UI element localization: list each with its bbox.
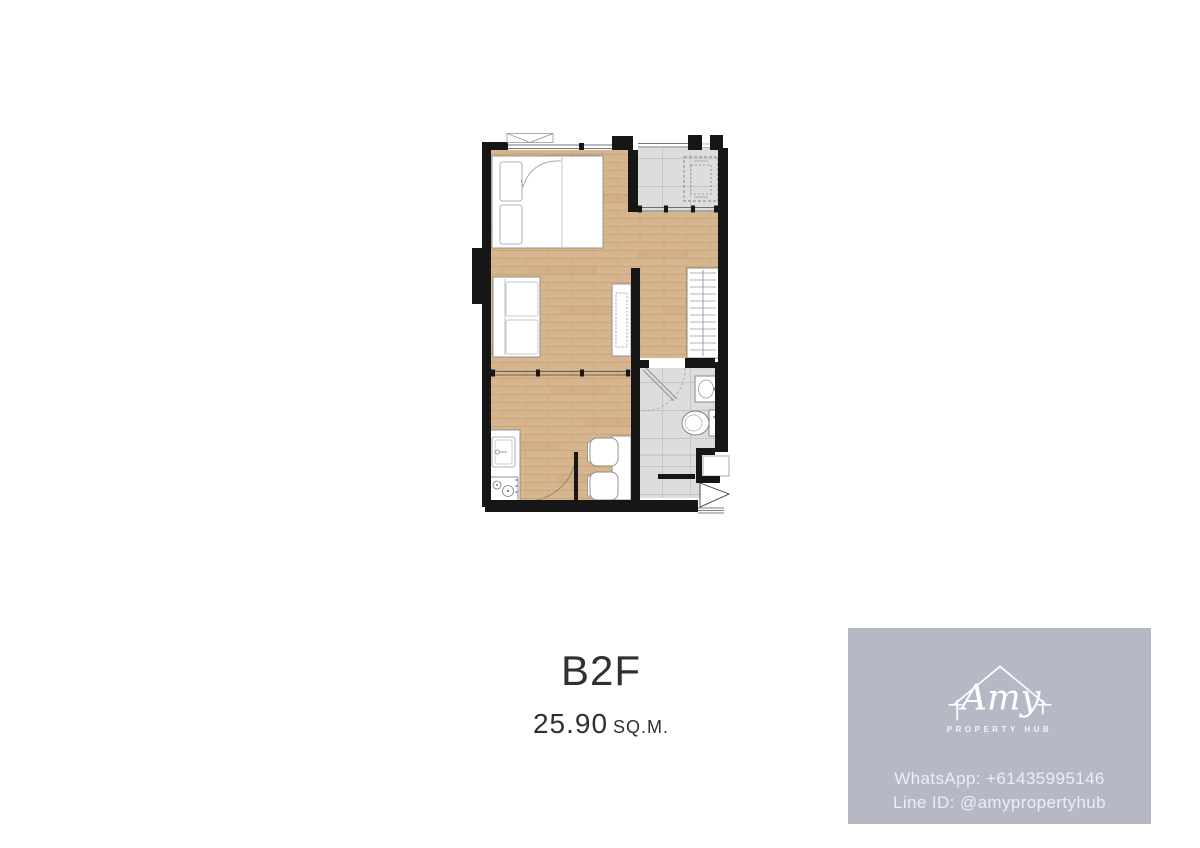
balcony-floor bbox=[638, 148, 718, 212]
floorplan-flyer: B2F 25.90SQ.M. Amy PROPERTY HUB WhatsApp… bbox=[0, 0, 1200, 848]
house-outline-icon: Amy bbox=[941, 662, 1059, 722]
tv-console bbox=[612, 284, 631, 356]
entrance-door bbox=[700, 483, 729, 507]
whatsapp-label: WhatsApp: bbox=[894, 769, 981, 788]
wall-balcony-top-a bbox=[688, 135, 702, 150]
shower-kerb bbox=[658, 474, 695, 479]
toilet-bowl bbox=[682, 411, 709, 435]
stove bbox=[489, 477, 518, 501]
area-value: 25.90 bbox=[533, 708, 608, 739]
whatsapp-value: +61435995146 bbox=[986, 769, 1105, 788]
window-awning bbox=[507, 134, 553, 143]
unit-name: B2F bbox=[436, 648, 766, 694]
wall-bathroom-top bbox=[685, 358, 715, 368]
wall-balcony-top-b bbox=[710, 135, 723, 150]
floor-plan bbox=[466, 130, 736, 514]
wall-left bbox=[482, 142, 491, 507]
wood-floor-doorway bbox=[631, 212, 638, 268]
wall-top-mid bbox=[612, 136, 633, 150]
wall-right-bathroom bbox=[715, 362, 728, 452]
pillow bbox=[500, 162, 522, 201]
pillow bbox=[500, 205, 522, 244]
logo-name: Amy bbox=[958, 678, 1041, 719]
dining-chair bbox=[588, 472, 619, 500]
line-id-value: @amypropertyhub bbox=[960, 793, 1106, 812]
dining-chair bbox=[588, 438, 619, 466]
wall-left-column bbox=[472, 248, 491, 304]
whatsapp-line: WhatsApp: +61435995146 bbox=[893, 767, 1106, 791]
wall-kitchen-partition bbox=[574, 452, 578, 505]
wall-bathroom-jamb bbox=[640, 360, 649, 368]
entry-threshold-hatch bbox=[698, 508, 724, 513]
entry-niche bbox=[703, 456, 729, 476]
wall-bottom bbox=[485, 500, 698, 512]
agency-watermark: Amy PROPERTY HUB WhatsApp: +61435995146 … bbox=[848, 628, 1151, 824]
wall-entry-sill bbox=[696, 476, 720, 483]
area-unit: SQ.M. bbox=[613, 717, 669, 737]
wall-right-upper bbox=[718, 148, 728, 362]
wardrobe bbox=[687, 268, 719, 358]
sofa bbox=[493, 277, 540, 357]
bedroom-window bbox=[508, 143, 612, 150]
wall-entry-side bbox=[696, 448, 702, 480]
kitchen-counter bbox=[487, 430, 520, 502]
wall-bedroom-balcony bbox=[628, 150, 638, 212]
line-id-line: Line ID: @amypropertyhub bbox=[893, 791, 1106, 815]
logo-subtitle: PROPERTY HUB bbox=[947, 725, 1052, 734]
kitchen-sink bbox=[492, 437, 515, 467]
contact-info: WhatsApp: +61435995146 Line ID: @amyprop… bbox=[893, 767, 1106, 815]
unit-area: 25.90SQ.M. bbox=[436, 708, 766, 740]
bed bbox=[492, 156, 603, 248]
wall-interior-long bbox=[631, 268, 640, 508]
line-id-label: Line ID: bbox=[893, 793, 955, 812]
unit-caption: B2F 25.90SQ.M. bbox=[436, 648, 766, 740]
toilet bbox=[682, 410, 720, 436]
